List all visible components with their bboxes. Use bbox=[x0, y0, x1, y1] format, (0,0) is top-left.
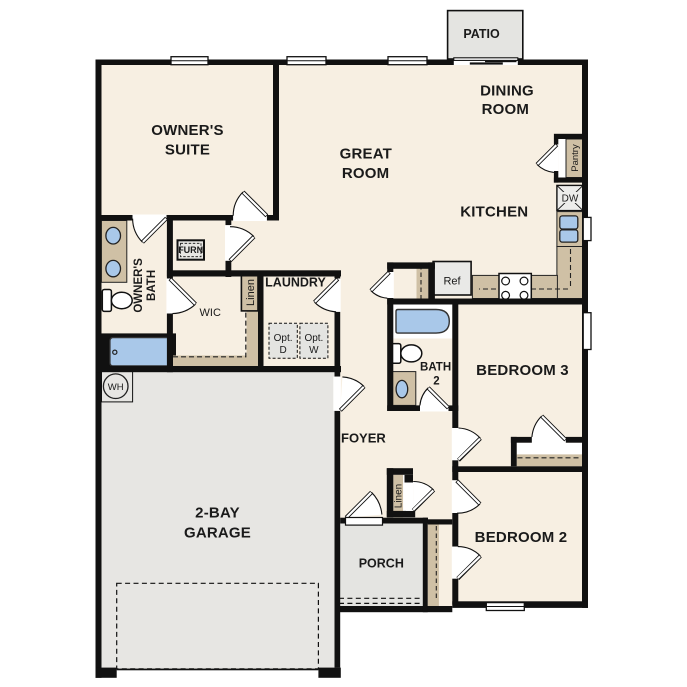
svg-text:OWNER'S: OWNER'S bbox=[151, 122, 223, 139]
svg-text:Pantry: Pantry bbox=[570, 144, 581, 172]
svg-text:WIC: WIC bbox=[200, 307, 221, 319]
svg-text:Linen: Linen bbox=[393, 484, 404, 508]
svg-text:PORCH: PORCH bbox=[359, 557, 404, 571]
svg-text:W: W bbox=[309, 345, 319, 356]
svg-text:GREAT: GREAT bbox=[340, 146, 392, 163]
svg-text:SUITE: SUITE bbox=[165, 142, 210, 159]
svg-text:BATH: BATH bbox=[420, 361, 451, 373]
svg-text:KITCHEN: KITCHEN bbox=[460, 203, 528, 220]
svg-text:Opt.: Opt. bbox=[274, 333, 293, 344]
svg-text:DINING: DINING bbox=[480, 82, 534, 99]
svg-text:DW: DW bbox=[562, 194, 579, 205]
svg-text:BATH: BATH bbox=[146, 270, 158, 301]
svg-text:D: D bbox=[279, 345, 286, 356]
svg-text:Opt.: Opt. bbox=[304, 333, 323, 344]
svg-text:Ref: Ref bbox=[443, 275, 461, 287]
svg-text:GARAGE: GARAGE bbox=[184, 524, 251, 541]
svg-text:Linen: Linen bbox=[245, 279, 257, 306]
svg-text:2: 2 bbox=[433, 376, 439, 388]
svg-text:OWNER'S: OWNER'S bbox=[133, 258, 145, 313]
svg-text:2-BAY: 2-BAY bbox=[195, 504, 240, 521]
svg-text:BEDROOM 2: BEDROOM 2 bbox=[475, 529, 568, 546]
svg-text:ROOM: ROOM bbox=[482, 101, 529, 118]
svg-text:BEDROOM 3: BEDROOM 3 bbox=[476, 362, 569, 379]
svg-text:FURN: FURN bbox=[178, 245, 203, 255]
svg-text:PATIO: PATIO bbox=[463, 27, 500, 41]
svg-text:LAUNDRY: LAUNDRY bbox=[265, 276, 326, 290]
svg-text:WH: WH bbox=[108, 382, 124, 393]
svg-text:FOYER: FOYER bbox=[341, 431, 386, 446]
svg-text:ROOM: ROOM bbox=[342, 165, 389, 182]
